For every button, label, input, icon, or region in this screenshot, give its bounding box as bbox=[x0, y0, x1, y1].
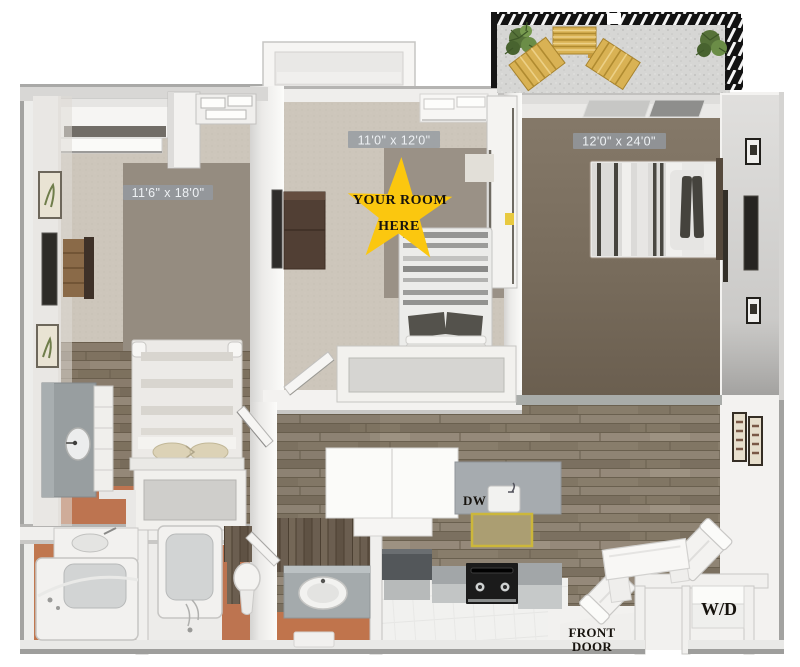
svg-text:FRONT: FRONT bbox=[569, 625, 616, 640]
svg-text:11'0" x 12'0": 11'0" x 12'0" bbox=[358, 134, 431, 148]
svg-text:12'0" x 24'0": 12'0" x 24'0" bbox=[582, 135, 656, 149]
svg-text:YOUR ROOM: YOUR ROOM bbox=[353, 193, 447, 208]
svg-text:W/D: W/D bbox=[701, 599, 737, 619]
svg-text:11'6" x 18'0": 11'6" x 18'0" bbox=[132, 186, 205, 200]
svg-text:DOOR: DOOR bbox=[572, 639, 613, 654]
svg-text:HERE: HERE bbox=[378, 219, 420, 234]
svg-text:DW: DW bbox=[463, 493, 486, 508]
